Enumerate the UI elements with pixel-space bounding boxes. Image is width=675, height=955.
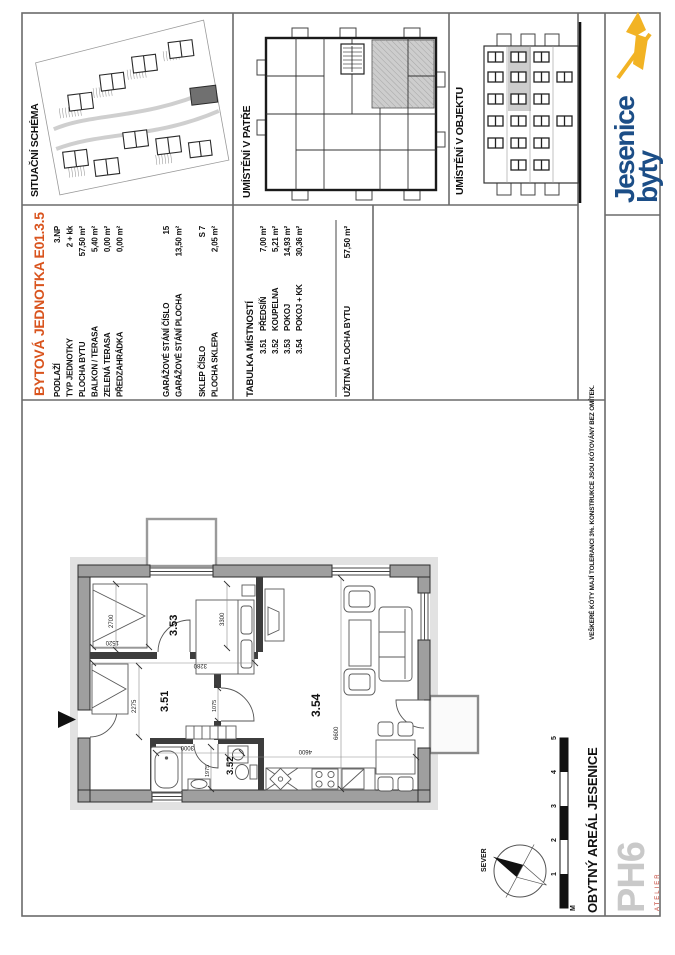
row-label: PŘEDZAHRÁDKA [116, 331, 125, 397]
bed [196, 585, 255, 674]
rooms-table: TABULKA MÍSTNOSTÍ 3.51 PŘEDSÍŇ 7,00 m² 3… [245, 220, 352, 397]
room-label-353: 3.53 [168, 615, 180, 636]
dim-1075: 1075 [212, 700, 218, 712]
row-label: GARÁŽOVÉ STÁNÍ PLOCHA [175, 293, 184, 397]
room-num: 3.53 [283, 338, 292, 354]
row-label: TYP JEDNOTKY [66, 337, 75, 397]
sofa-set [344, 586, 412, 695]
toilet [236, 765, 258, 780]
bathtub [151, 747, 182, 792]
sheet-canvas: SITUAČNÍ SCHÉMA [0, 0, 675, 955]
dim-3280: 3280 [193, 662, 207, 668]
rooms-rows: 3.51 PŘEDSÍŇ 7,00 m² 3.52 KOUPELNA 5,21 … [259, 225, 304, 354]
ph6-sub: ATELIER [655, 872, 661, 911]
site-plan: SITUAČNÍ SCHÉMA [28, 19, 231, 197]
room-area: 14,93 m² [283, 225, 292, 256]
room-area: 7,00 m² [259, 225, 268, 252]
shoe-cabinet [186, 726, 236, 739]
brand-logo: byty Jesenice [609, 12, 663, 203]
kitchen [266, 768, 375, 790]
total-label: UŽITNÁ PLOCHA BYTU [341, 306, 352, 397]
hall-closet [92, 664, 128, 714]
row-value: 0,00 m² [116, 225, 125, 252]
rooms-table-title: TABULKA MÍSTNOSTÍ [245, 301, 256, 397]
building-elevation: UMÍSTĚNÍ V OBJEKTU [453, 22, 580, 203]
room-label-352: 3.52 [225, 757, 236, 776]
scale-tick-1: 1 [551, 872, 558, 876]
floor-location-plan: UMÍSTĚNÍ V PATŘE [240, 28, 445, 200]
scale-tick-4: 4 [551, 770, 558, 774]
scale-bar: 1 2 3 4 5 M [551, 736, 577, 911]
row-label: PLOCHA SKLEPA [211, 332, 220, 397]
room-num: 3.54 [295, 338, 304, 354]
row-value: 5,40 m² [91, 225, 100, 252]
drawing-sheet: SITUAČNÍ SCHÉMA [0, 0, 675, 955]
north-label: SEVER [481, 848, 488, 872]
project-title: OBYTNÝ AREÁL JESENICE [585, 747, 600, 913]
row-label: PLOCHA BYTU [78, 341, 87, 397]
unit-table: BYTOVÁ JEDNOTKA E01.3.5 PODLAŽÍ 3.NP TYP… [31, 212, 220, 397]
dim-6600: 6600 [334, 726, 340, 740]
row-value: 2,05 m² [211, 225, 220, 252]
ph6-logo: PH6 ATELIER [611, 842, 661, 913]
room-label-351: 3.51 [159, 691, 171, 712]
site-highlighted-building [190, 85, 218, 105]
tv-bench [265, 589, 284, 641]
unit-rows: PODLAŽÍ 3.NP TYP JEDNOTKY 2 + kk PLOCHA … [53, 225, 220, 397]
room-name: POKOJ + KK [295, 284, 304, 331]
floor-stair-core [341, 44, 364, 74]
dim-3000: 3000 [180, 744, 194, 750]
unit-title: BYTOVÁ JEDNOTKA E01.3.5 [31, 212, 47, 396]
row-label: BALKON / TERASA [91, 326, 100, 397]
site-plan-label: SITUAČNÍ SCHÉMA [28, 103, 41, 197]
room-area: 30,36 m² [295, 225, 304, 256]
dining-set [376, 722, 415, 791]
scale-tick-5: 5 [551, 736, 558, 740]
room-num: 3.52 [271, 338, 280, 354]
row-label: GARÁŽOVÉ STÁNÍ ČÍSLO [162, 303, 171, 397]
row-value: 57,50 m² [78, 225, 87, 256]
disclaimer-note: VEŠKERÉ KÓTY MAJÍ TOLERANCI 3%. KONSTRUK… [587, 385, 596, 640]
building-elevation-label: UMÍSTĚNÍ V OBJEKTU [453, 87, 466, 195]
wardrobe [93, 584, 147, 648]
room-name: KOUPELNA [271, 287, 280, 331]
room-name: PŘEDSÍŇ [259, 296, 268, 331]
row-value: 13,50 m² [175, 225, 184, 256]
logo-line2: Jesenice [609, 96, 640, 203]
scale-tick-3: 3 [551, 804, 558, 808]
scale-unit: M [570, 905, 577, 911]
dim-1520: 1520 [105, 639, 119, 645]
dim-3300: 3300 [220, 612, 226, 626]
row-value: 0,00 m² [103, 225, 112, 252]
row-label: ZELENÁ TERASA [103, 332, 112, 397]
north-compass: SEVER [479, 830, 560, 911]
floor-location-label: UMÍSTĚNÍ V PATŘE [240, 105, 253, 198]
dim-1975: 1975 [205, 765, 211, 777]
row-value: S 7 [198, 225, 207, 237]
row-label: PODLAŽÍ [53, 362, 62, 397]
furniture [92, 584, 415, 792]
upper-terrace [147, 519, 216, 566]
title-block: SEVER 1 2 3 4 5 M OBYTNÝ AREÁL JESENICE [479, 736, 661, 913]
dim-4600: 4600 [298, 748, 312, 754]
ph6-name: PH6 [611, 842, 653, 913]
dim-2700: 2700 [109, 614, 115, 628]
washbasin [188, 779, 210, 790]
room-num: 3.51 [259, 338, 268, 354]
lighthouse-icon [618, 12, 650, 78]
row-value: 3.NP [53, 225, 62, 243]
room-label-354: 3.54 [309, 693, 323, 717]
row-value: 2 + kk [66, 225, 75, 247]
balcony [430, 696, 478, 753]
room-name: POKOJ [283, 304, 292, 331]
scale-tick-2: 2 [551, 838, 558, 842]
room-area: 5,21 m² [271, 225, 280, 252]
dim-2275: 2275 [132, 699, 138, 713]
row-value: 15 [162, 225, 171, 234]
row-label: SKLEP ČÍSLO [198, 346, 207, 397]
total-value: 57,50 m² [342, 226, 352, 259]
floor-plan: 2700 1520 3300 3280 2275 1075 3000 1975 … [58, 519, 478, 806]
